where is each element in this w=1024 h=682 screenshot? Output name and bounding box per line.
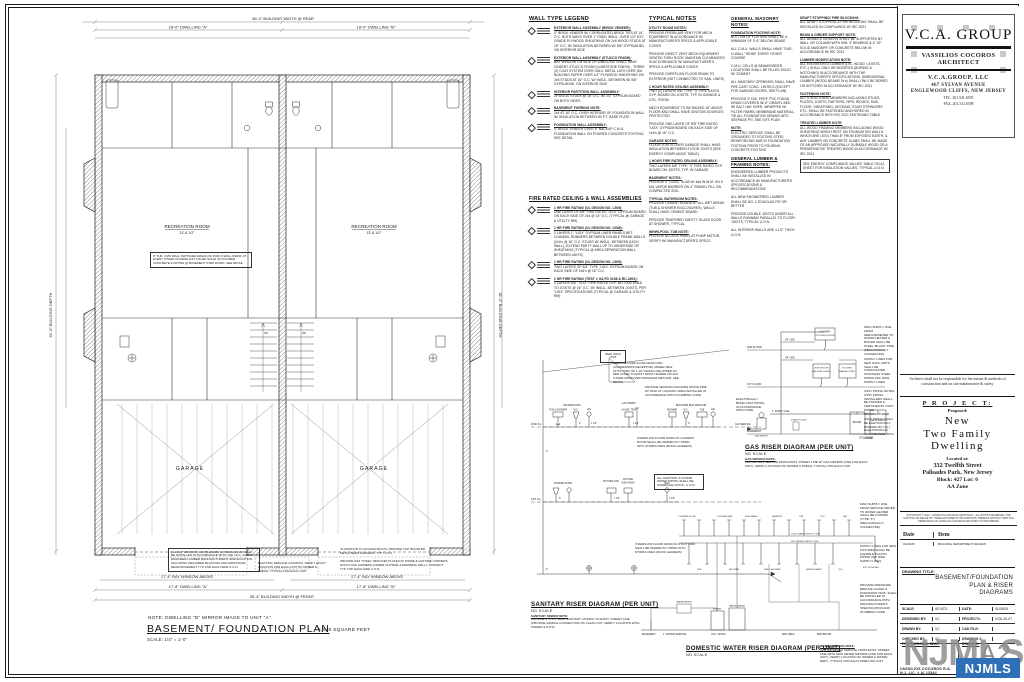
legend-wall-section-icon [537,28,550,34]
sanitary-riser-title-block: SANITARY RISER DIAGRAM (PER UNIT) NO SCA… [531,601,643,630]
note-text: 2 LAYERS 1" "UGX" GYPSUM LINER PANELS BE… [554,231,645,257]
svg-text:BATHROOM: BATHROOM [563,403,581,407]
svg-text:2ND FLOOR: 2ND FLOOR [747,345,762,349]
designed-by-label: DESIGNED BY: [900,617,932,621]
note-item: PROVIDE TEMPERED SAFETY GLASS DOOR AT SH… [649,218,725,227]
note-item: FOUNDATION WALL ASSEMBLY:4" BRICK VENEER… [529,123,646,140]
svg-text:3": 3" [546,451,548,453]
fire-rated-legend: FIRE RATED CEILING & WALL ASSEMBLIES 1 H… [529,196,646,302]
dim-label: 18'-0" DWELLING "A" [169,25,208,30]
designed-by-value: VC [932,617,960,621]
svg-text:MASTER BATH: MASTER BATH [806,568,822,571]
note-text: ELECTRIC SERVICE SHALL BE GROUNDED TO FO… [731,131,790,152]
wall-type-symbol [529,106,551,119]
note-item: 1 HR FIRE RATING (UL DESIGN NO. U336):2 … [529,226,646,256]
wall-type-symbol [529,26,551,52]
plan-area: 2,049 SQUARE FEET [318,628,370,633]
project-heading: P R O J E C T: [900,400,1015,407]
note-text: PROVIDE 4" CONC. SLAB W/ 6x6 W.W.M. ON 6… [649,180,723,193]
note-text: TWO (2) LAYERS 5/8" TYPE "X" FIRE RATED … [649,89,720,102]
note-text: TWO LAYERS 5/8" TYPE "X" FIRE RATED GYP.… [649,164,723,172]
lumber-notes-items: ENGINEERED LUMBER PRODUCTS SHALL BE INST… [731,170,795,237]
svg-text:1 1/2": 1 1/2" [591,423,597,425]
project-zone: AA Zone [900,484,1015,490]
stair-up-label-b: UP [302,331,306,335]
svg-text:TUB & SHOWER: TUB & SHOWER [549,410,567,412]
project-no-label: PROJECT#: [960,617,993,621]
water-service-note-text: INSTALL WATER SERVICE FROM EXIST. STREET… [820,648,892,663]
note-item: 1 HOUR RATED CEILING ASSEMBLY:TWO (2) LA… [649,85,725,102]
plan-note-bay-window: ALL BAY WINDOW, CANTILEVERS & OVERHANGS … [168,548,260,572]
svg-text:GAS METER: GAS METER [755,435,768,438]
svg-text:LAUNDRY: LAUNDRY [772,515,783,518]
drawing-title-cell: DRAWING TITLE: BASEMENT/FOUNDATION PLAN … [900,567,1015,605]
room-dim-b: 13'-8 1/2" [366,231,382,235]
scale-value: AS NTD [932,607,960,611]
svg-text:GAS SERVICE: GAS SERVICE [735,423,751,426]
svg-text:EXT. HOSE BIB: EXT. HOSE BIB [863,567,879,569]
svg-text:POWDER ROOM: POWDER ROOM [554,483,572,485]
svg-text:LIVING ROOM: LIVING ROOM [814,368,829,370]
svg-text:1 1/2": 1 1/2" [669,498,675,500]
svg-text:W.C.: W.C. [574,410,579,412]
sanitary-note-utility-overflow: OVERFLOW FLOOR DRAIN IN UTILITY RM SHALL… [635,543,695,554]
fire-rated-legend-title: FIRE RATED CEILING & WALL ASSEMBLIES [529,196,646,203]
svg-text:HOT WATER SUPPLY LINE: HOT WATER SUPPLY LINE [791,540,819,543]
note-text: PROVIDE CEMENT BOARD AT ALL WET AREAS (T… [649,201,724,214]
logo-rule [906,46,1011,49]
note-text: ONE LAYER OF 5/8" FIRE RATED "UGX" GYPSU… [554,210,646,223]
room-label-recreation-b: RECREATION ROOM [351,224,397,229]
legend-diamond-icon [528,27,536,35]
project-address: 332 Twelfth Street [900,462,1015,469]
note-item: NOTE:ELECTRIC SERVICE SHALL BE GROUNDED … [731,126,795,152]
gas-service-note: INSTALL GAS SERVICE FROM EXIST. STREET L… [745,460,867,468]
masonry-notes-items: FOUNDATION FOOTING NOTE:BOTTOM OF FOOTIN… [731,31,795,153]
plan-title: BASEMENT/ FOUNDATION PLAN [147,623,330,635]
note-item: EXTERIOR WALL ASSEMBLY (STUCCO FINISH):B… [529,56,646,86]
note-item: ALL MASONRY OPENINGS SHALL HAVE PRE-CAST… [731,80,795,93]
dimension-texts: 36'-0" BUILDING WIDTH @ REAR 18'-0" DWEL… [48,16,503,599]
svg-text:BOILER: BOILER [853,422,862,424]
revisions-table: Date Item 01/06/25 BUILDING DEPARTMENT R… [900,531,1015,568]
stair-up-label-a: UP [264,331,268,335]
note-text: PROVIDE DOUBLE JOISTS UNDER ALL WALLS RU… [731,212,795,225]
wall-type-symbol [529,260,551,273]
wall-type-legend-title: WALL TYPE LEGEND [529,16,646,23]
room-dim-a: 13'-8 1/2" [179,231,195,235]
legend-wall-section-icon [537,57,550,63]
date-label: DATE: [960,607,993,611]
note-item: TYPICAL BATHROOM NOTES:PROVIDE CEMENT BO… [649,197,725,214]
plan-note-bracket: PROVIDE 5/16 "STEEL" BRACKET PLATES AT I… [340,560,450,571]
svg-text:W.C.: W.C. [684,410,689,412]
revision-date: 01/06/25 [900,542,934,546]
revision-row: 01/06/25 BUILDING DEPARTMENT REVIEW [900,540,1015,546]
note-item: LUMBER MODIFICATION NOTE:ALL ENGINEERED … [800,58,890,88]
revision-item: BUILDING DEPARTMENT REVIEW [934,542,986,546]
gas-note-main-supply: MAIN SUPPLY LINE FROM SERVICE/METER TO W… [864,326,897,357]
architect-name: VASSILIOS COCOROS ARCHITECT [903,52,1014,66]
legend-wall-section-icon [537,108,550,114]
svg-text:KITCHEN SINK: KITCHEN SINK [603,481,620,483]
dim-label: 17'-8" DWELLING "A" [169,584,208,589]
svg-text:BAR AREA: BAR AREA [782,633,795,636]
foundation-walls [84,75,481,555]
note-text: ALL ENGINEERED LUMBER (LVL, WOOD I JOIST… [800,62,888,88]
note-text: 2 LAYERS 5/8" "UGX" FIRE RATED GYP. BD. … [554,281,646,298]
right-notes-items: DRAFT STOPPING/ FIRE BLOCKING:ALL DRAFT … [800,16,890,173]
water-riser-title-block: DOMESTIC WATER RISER DIAGRAM (PER UNIT) … [686,645,816,657]
svg-text:3": 3" [559,498,561,500]
svg-text:BATHROOM: BATHROOM [817,633,831,636]
firm-address2: ENGLEWOOD CLIFFS, NEW JERSEY [903,89,1014,94]
firm-fax: FAX. 201.541.6598 [903,102,1014,106]
room-label-garage-a: GARAGE [176,466,204,472]
room-label-recreation-a: RECREATION ROOM [164,224,210,229]
legend-diamond-icon [528,206,536,214]
drawn-by-label: DRAWN BY: [900,627,932,631]
note-item: PROVIDE 4" DIA. PERF. PVC FOUND. DRAIN C… [731,97,795,123]
gas-riser-scale: NO SCALE [745,452,870,456]
note-item: PROVIDE OVERFLOW FLOOR DRAIN TO EXTERIOR… [649,72,725,81]
note-text: ALL C.M.U. WALLS SHALL HAVE "DUR-O-WALL"… [731,47,793,60]
note-text: FLOOR JOISTS OVER GARAGE SHALL HAVE INSU… [649,143,721,156]
note-text: TWO LAYERS OF 5/8" TYPE "UGX" GYPSUM BOA… [554,265,643,273]
legend-diamond-icon [528,90,536,98]
svg-text:GAS FIRE PLACE: GAS FIRE PLACE [812,370,831,373]
svg-text:KITCHEN SINK: KITCHEN SINK [717,516,733,518]
note-text: ALL BEAMS & GIRDERS SHALL BE SUPPORTED B… [800,37,883,54]
svg-text:SHOWER: SHOWER [729,569,739,571]
svg-text:3": 3" [579,423,581,425]
note-item: EXTERIOR WALL ASSEMBLY (BRICK VENEER):4"… [529,26,646,52]
legend-wall-section-icon [537,278,550,284]
gas-note-csst: CSST PIPING NOTES: CSST PIPING INSTALLER… [864,390,897,417]
svg-text:3/4" LINE: 3/4" LINE [785,358,795,360]
svg-text:1" SUPPLY LINE: 1" SUPPLY LINE [772,411,790,413]
wall-type-symbol [529,56,551,86]
legend-wall-section-icon [537,124,550,130]
sanitary-note-laundry-overflow: OVERFLOW FLOOR DRAIN IN LAUNDRY ROOM SHA… [637,437,695,448]
note-item: 1 HR FIRE RATING (UL DESIGN NO. L505):ON… [529,206,646,223]
legend-diamond-icon [528,57,536,65]
note-item: TREATED LUMBER NOTE:ALL WOOD FRAMING MEM… [800,121,890,156]
note-text: 4" BRICK VENEER W/ CORRUGATED BRICK TIES… [554,31,646,52]
typical-notes-column: TYPICAL NOTES UTILITY ROOM NOTES:PROVIDE… [649,16,725,246]
room-label-garage-b: GARAGE [360,466,388,472]
legend-diamond-icon [528,124,536,132]
svg-text:MASTER BATHROOM: MASTER BATHROOM [676,403,707,407]
note-text: PROVIDE ONE LAYER OF 5/8" FIRE RATED "UG… [649,122,718,135]
note-text: PROVIDE DIRECT VENT MECH EQUIPMENT VENTE… [649,52,725,69]
cad-file-label: CAD FILE: [960,627,993,631]
svg-text:KITCHEN: KITCHEN [842,368,852,370]
note-text: C.M.U. CELLS @ BEAM/GIRDER LOCATIONS SHA… [731,64,791,77]
note-text: PROVIDE TEMPERED SAFETY GLASS DOOR AT SH… [649,218,721,226]
wall-type-legend-items: EXTERIOR WALL ASSEMBLY (BRICK VENEER):4"… [529,26,646,140]
revisions-header: Date Item [900,531,1015,540]
svg-text:SHOWER: SHOWER [667,410,678,412]
note-item: WHIRLPOOL TUB NOTE:PROVIDE ACCESS PANEL … [649,230,725,243]
water-note-pressure: PROVIDE PRESSURE REDUCE GAUGE & EXPANSIO… [860,584,897,615]
copyright-notice: COPYRIGHT © 2021 - VASSILIOS COCOROS ARC… [900,511,1017,526]
water-riser-title: DOMESTIC WATER RISER DIAGRAM (PER UNIT) [686,645,816,652]
note-item: UTILITY ROOM NOTES:PROVIDE FRESH-AIR VEN… [649,26,725,48]
wall-type-symbol [529,206,551,223]
firm-address1: 467 SYLVAN AVENUE [903,83,1014,88]
note-item: ALL INTERIOR WALLS ARE 4 1/2" THICK U.O.… [731,228,795,237]
project-box: P R O J E C T: Proposed: New Two Family … [900,396,1015,490]
project-block-lot: Block: 427 Lot: 6 [900,477,1015,483]
svg-text:DISH WASH: DISH WASH [745,515,758,518]
sanitary-sewer-note: PROVIDE 4" P.V.C. MAIN SANITARY LATERAL … [531,617,639,629]
gas-note-bond-left: ELECTRICALLY BOND CSST PIPING IN ACCORDA… [736,398,766,413]
dim-label: 17'-8" DWELLING "B" [357,584,396,589]
svg-text:W.C.: W.C. [839,569,844,571]
water-riser-labels: BASEMENT 1" WATER SERVICE UTIL. ROOM BAR… [642,515,879,636]
note-text: 2x4 AT 16" O.C. OVER INTERIOR OF FOUNDAT… [554,111,644,119]
svg-text:WATER METER: WATER METER [676,601,692,604]
svg-text:2ND FL.: 2ND FL. [531,422,542,426]
logo-rule [906,69,1011,72]
wall-type-symbol [529,90,551,103]
note-item: FOUNDATION FOOTING NOTE:BOTTOM OF FOOTIN… [731,31,795,44]
note-item: GARAGE NOTES:FLOOR JOISTS OVER GARAGE SH… [649,139,725,156]
svg-text:CLOTHES DRYER: CLOTHES DRYER [816,335,835,337]
svg-text:W.C.: W.C. [821,516,826,518]
masonry-notes-title: GENERAL MASONRY NOTES: [731,16,795,28]
svg-text:TUB: TUB [799,516,804,518]
svg-text:1 1/2": 1 1/2" [633,423,639,425]
date-value: 01/06/25 [993,607,1015,611]
note-item: MECH EQUIPMENT TO BE RAISED 18" ABOVE FL… [649,106,725,119]
svg-text:LAV: LAV [587,408,592,411]
svg-text:TUB: TUB [700,410,705,412]
njmls-badge: NJMLS [956,658,1020,678]
plan-note-cmu: 8" THK. CMU WALL SWITCHED AREAS W/ DUR-O… [150,252,252,268]
note-text: 2x WOOD STUDS @ 16" O.C. W/ 1/2" GYPSUM … [554,94,641,102]
note-item: PROVIDE DIRECT VENT MECH EQUIPMENT VENTE… [649,52,725,69]
note-item: INTERIOR PARTITION WALL ASSEMBLY:2x WOOD… [529,90,646,103]
legend-diamond-icon [528,227,536,235]
svg-text:1" WATER SERVICE: 1" WATER SERVICE [663,633,687,636]
svg-text:SCALE POCKET: SCALE POCKET [791,419,808,422]
svg-text:LAUNDRY: LAUNDRY [819,331,831,334]
dim-label: 61'-0" BUILDING DEPTH [48,292,53,337]
sanitary-riser-title: SANITARY RISER DIAGRAM (PER UNIT) [531,601,643,608]
firm-logo-text: V.C.A. GROUP [903,27,1014,44]
wall-type-symbol [529,277,551,299]
drawing-title-value: BASEMENT/FOUNDATION PLAN & RISER DIAGRAM… [935,575,1013,598]
lumber-notes-title: GENERAL LUMBER & FRAMING NOTES: [731,156,795,168]
legend-wall-section-icon [537,228,550,234]
firm-name: V.C.A.GROUP, LLC [903,75,1014,81]
svg-text:BASEMENT: BASEMENT [747,429,762,433]
note-text: ALL NEW ENGINEERED LUMBER SHALL BE NO. 1… [731,195,787,208]
water-note-main-supply: MAIN SUPPLY LINE FROM SERVICE/ METER TO … [860,503,897,530]
wall-type-symbol [529,226,551,256]
svg-text:1 1/2": 1 1/2" [614,498,620,500]
typical-notes-items: UTILITY ROOM NOTES:PROVIDE FRESH-AIR VEN… [649,26,725,243]
svg-text:3/4" LINE: 3/4" LINE [785,340,795,342]
note-text: PROVIDE ACCESS PANEL AT PUMP MOTOR, VERI… [649,234,720,242]
note-item: 1 HR FIRE RATING (UL DESIGN NO. L505):TW… [529,260,646,273]
svg-text:LAUND. TRAY: LAUND. TRAY [622,409,637,412]
note-item: 1 HOUR FIRE RATED CEILING ASSEMBLY:TWO L… [649,159,725,172]
note-item: ALL NEW ENGINEERED LUMBER SHALL BE NO. 1… [731,195,795,208]
note-text: ENGINEERED LUMBER PRODUCTS SHALL BE INST… [731,170,792,191]
note-item: DRAFT STOPPING/ FIRE BLOCKING:ALL DRAFT … [800,16,890,29]
legend-diamond-icon [528,107,536,115]
note-text: ALL INTERIOR WALLS ARE 4 1/2" THICK U.O.… [731,228,795,236]
svg-text:BOILER: BOILER [713,609,721,611]
plan-note-anchor: IN ADDITION TO ANCHOR BOLTS, PROVIDE TOP… [340,548,426,556]
gas-riser-title-block: GAS RISER DIAGRAM (PER UNIT) NO SCALE GA… [745,444,870,469]
typical-notes-title: TYPICAL NOTES [649,16,725,23]
dim-label: 18'-0" DWELLING "B" [357,25,396,30]
sanitary-riser-scale: NO SCALE [531,609,643,613]
svg-text:3": 3" [688,423,690,425]
plan-scale: SCALE: 1/4" = 1'-0" [147,637,187,642]
note-item: C.M.U. CELLS @ BEAM/GIRDER LOCATIONS SHA… [731,64,795,77]
svg-text:1ST FL.: 1ST FL. [531,497,542,501]
plan-mirror-note: NOTE: DWELLING "B" MIRROR IMAGE TO UNIT … [148,615,272,620]
svg-text:4": 4" [546,569,548,571]
note-item: BASEMENT NOTES:PROVIDE 4" CONC. SLAB W/ … [649,176,725,193]
scale-label: SCALE: [900,607,932,611]
dim-label: 35'-4" BUILDING WIDTH @ FRONT [250,594,315,599]
note-text: 4" BRICK VENEER OVER 8" BACKUP C.M.U. FO… [554,127,645,140]
note-text: ALL WOOD FRAMING MEMBERS INCLUDING WOOD … [800,126,888,156]
water-note-fixture-supply: SUPPLY LINES FOR NEW FIXTURES SHALL BE F… [860,545,897,564]
note-item: BASEMENT FURRING NOTE:2x4 AT 16" O.C. OV… [529,106,646,119]
svg-text:LAV: LAV [843,515,848,518]
wall-type-legend: WALL TYPE LEGEND EXTERIOR WALL ASSEMBLY … [529,16,646,144]
dim-label: 36'-0" BUILDING WIDTH @ REAR [252,16,314,21]
svg-text:RANGE/ OVEN: RANGE/ OVEN [839,370,855,373]
svg-text:WATER HEATER: WATER HEATER [729,605,746,608]
revisions-item-header: Item [934,532,950,538]
sanitary-note-attic-overflow: PROVIDE OVER-FLOW DRAIN PAN (CONDENSATE … [613,362,681,385]
drawing-title-label: DRAWING TITLE: [902,569,935,574]
water-service-note: WATER SERVICE NOTE:INSTALL WATER SERVICE… [820,645,896,664]
svg-text:LAUNDRY: LAUNDRY [622,401,636,405]
sanitary-hvac-unit-box: NEW HVAC UNIT [600,350,626,363]
architect-logo-box: V.C.A. GROUP VASSILIOS COCOROS ARCHITECT… [902,14,1015,138]
svg-text:1ST FLOOR: 1ST FLOOR [747,382,761,386]
note-item: FASTENING NOTE:ALL STRUCTURAL MEMBERS IN… [800,92,890,118]
drawn-by-value: VC [932,627,960,631]
wall-type-symbol [529,123,551,140]
dim-label: 17'-4" BAY WINDOW ABOVE [351,574,404,579]
svg-text:UTIL. ROOM: UTIL. ROOM [711,633,726,636]
note-text: ALL MASONRY OPENINGS SHALL HAVE PRE-CAST… [731,80,795,93]
legend-wall-section-icon [537,207,550,213]
project-name: New Two Family Dwelling [900,415,1015,453]
legend-diamond-icon [528,261,536,269]
project-located-label: Located at: [900,456,1015,461]
note-text: ALL STRUCTURAL MEMBERS INCLUDING STUDS, … [800,96,883,117]
note-text: MECH EQUIPMENT TO BE RAISED 18" ABOVE FL… [649,106,724,119]
note-text: PROVIDE OVERFLOW FLOOR DRAIN TO EXTERIOR… [649,72,724,80]
note-text: SEE ENERGY COMPLIANCE VALUES TABLE ON A1… [803,162,884,170]
svg-text:COLD WATER SUPPLY LINE: COLD WATER SUPPLY LINE [791,533,820,536]
note-item: ENGINEERED LUMBER PRODUCTS SHALL BE INST… [731,170,795,192]
basement-foundation-plan: 36'-0" BUILDING WIDTH @ REAR 18'-0" DWEL… [22,8,527,633]
svg-text:TUB: TUB [697,569,702,571]
plan-note-electric: ELECTRIC SERVICE LOCATION, VERIFY EXACT … [258,562,328,573]
legend-wall-section-icon [537,262,550,268]
note-text: BOTTOM OF FOOTING SHALL BE A MINIMUM OF … [731,35,787,43]
sanitary-note-washing-machine: PROVIDE WASHING MACHINE STAND PIPE W/ TR… [645,386,709,397]
sanitary-note-pvc: ALL SANITARY & STORM WATER PIPING SHALL … [654,474,704,490]
water-riser-scale: NO SCALE [686,653,816,657]
dimension-lines [54,20,502,602]
note-text: PROVIDE FRESH-AIR VENT FOR MECH EQUIPMEN… [649,31,717,48]
svg-text:BASEMENT: BASEMENT [642,633,656,636]
title-block: V.C.A. GROUP VASSILIOS COCOROS ARCHITECT… [897,6,1019,674]
svg-text:TUB & SHOWER: TUB & SHOWER [764,569,781,571]
fire-rated-legend-items: 1 HR FIRE RATING (UL DESIGN NO. L505):ON… [529,206,646,299]
note-text: ALL DRAFT STOPPING & FIRE BLOCKING SHALL… [800,20,884,28]
note-item: 1 HR FIRE RATING (TEST # GA FD 0108 & RC… [529,277,646,299]
dim-label: 61'-0" BUILDING DEPTH [498,293,503,338]
gas-note-csst-bond: CSST PIPING SHALL BE ELECTRICALLY BONDED… [864,418,897,441]
note-item: ALL C.M.U. WALLS SHALL HAVE "DUR-O-WALL"… [731,47,795,60]
svg-text:LAV: LAV [711,408,716,411]
legend-wall-section-icon [537,91,550,97]
right-notes-column: DRAFT STOPPING/ FIRE BLOCKING:ALL DRAFT … [800,16,890,177]
note-item: PROVIDE DOUBLE JOISTS UNDER ALL WALLS RU… [731,212,795,225]
project-city: Palisades Park, New Jersey [900,470,1015,476]
svg-text:POWDER ROOM: POWDER ROOM [678,516,695,518]
revisions-date-header: Date [900,532,934,538]
note-item: SEE ENERGY COMPLIANCE VALUES TABLE ON A1… [800,159,890,173]
note-item: BEAM & GIRDER SUPPORT NOTE:ALL BEAMS & G… [800,33,890,55]
gas-note-hvac-supply: SUPPLY LINES FOR NEW HVAC UNITS SHALL BE… [864,358,897,385]
project-proposed: Proposed: [900,408,1015,413]
dim-label: 17'-4" BAY WINDOW ABOVE [161,574,214,579]
responsibility-disclaimer: Architect shall not be responsible for t… [900,374,1015,387]
firm-tel: TEL. 201.541.6595 [903,96,1014,100]
legend-diamond-icon [528,278,536,286]
note-item: PROVIDE ONE LAYER OF 5/8" FIRE RATED "UG… [649,122,725,135]
svg-text:KITCHEN: KITCHEN [623,479,633,481]
gas-riser-title: GAS RISER DIAGRAM (PER UNIT) [745,444,870,451]
water-riser-diagram [641,520,879,630]
note-text: PROVIDE 4" DIA. PERF. PVC FOUND. DRAIN C… [731,97,795,123]
project-no-value: VGA-25-07 [993,617,1015,621]
masonry-notes-column: GENERAL MASONRY NOTES: FOUNDATION FOOTIN… [731,16,795,240]
note-text: BAY WINDOW ON SIDE OF DWELLING SHALL HAV… [554,60,645,86]
svg-text:DISH WASH: DISH WASH [622,482,635,485]
